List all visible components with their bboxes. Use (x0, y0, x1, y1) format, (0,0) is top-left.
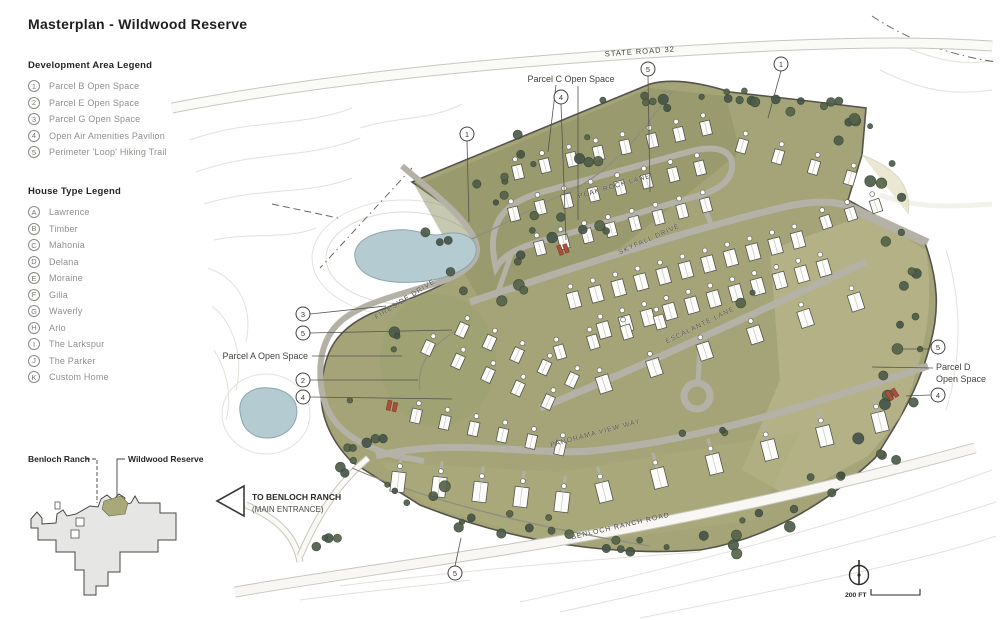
scale-label: 200 FT (845, 592, 867, 599)
masterplan-page: STATE ROAD 32 PEAK ROCK LANE SKYFALL DRI… (0, 0, 1000, 620)
legend-number-badge: 2 (28, 97, 40, 109)
legend-item: 4Open Air Amenities Pavilion (28, 130, 167, 142)
legend-letter-badge: J (28, 355, 40, 367)
house-type-legend: House Type Legend ALawrence BTimber CMah… (28, 186, 121, 388)
marker-4-right: 4 (931, 388, 945, 402)
key-map-inset: Benloch Ranch Wildwood Reserve (28, 454, 204, 595)
legend-letter-badge: I (28, 338, 40, 350)
label-parcel-c: Parcel C Open Space (527, 74, 614, 84)
inset-label-benloch: Benloch Ranch (28, 454, 90, 464)
legend-item: GWaverly (28, 305, 121, 317)
legend-number-badge: 5 (28, 146, 40, 158)
entrance-callout: TO BENLOCH RANCH (MAIN ENTRANCE) (217, 486, 341, 516)
scale-bar (871, 589, 920, 595)
page-title: Masterplan - Wildwood Reserve (28, 16, 247, 32)
label-parcel-d-1: Parcel D (936, 362, 971, 372)
svg-text:5: 5 (936, 343, 940, 352)
marker-1-topleft: 1 (460, 127, 474, 141)
label-parcel-a: Parcel A Open Space (222, 351, 308, 361)
legend-item: 1Parcel B Open Space (28, 80, 167, 92)
marker-5-right: 5 (931, 340, 945, 354)
marker-4-top: 4 (554, 90, 568, 104)
svg-text:5: 5 (301, 329, 305, 338)
legend-letter-badge: C (28, 239, 40, 251)
legend-number-badge: 3 (28, 113, 40, 125)
development-legend-heading: Development Area Legend (28, 60, 167, 71)
legend-letter-badge: H (28, 322, 40, 334)
legend-letter-badge: E (28, 272, 40, 284)
legend-item: DDelana (28, 256, 121, 268)
legend-item: CMahonia (28, 239, 121, 251)
legend-letter-badge: D (28, 256, 40, 268)
marker-1-topright: 1 (774, 57, 788, 71)
marker-4-left: 4 (296, 390, 310, 404)
legend-item: JThe Parker (28, 355, 121, 367)
legend-item: ALawrence (28, 206, 121, 218)
legend-item: KCustom Home (28, 371, 121, 383)
legend-item: 3Parcel G Open Space (28, 113, 167, 125)
svg-text:2: 2 (301, 376, 305, 385)
marker-3-left: 3 (296, 307, 310, 321)
svg-text:5: 5 (646, 65, 650, 74)
marker-5-left: 5 (296, 326, 310, 340)
entrance-line1: TO BENLOCH RANCH (252, 492, 341, 502)
inset-label-wildwood: Wildwood Reserve (128, 454, 204, 464)
svg-text:3: 3 (301, 310, 305, 319)
svg-text:4: 4 (301, 393, 305, 402)
svg-text:1: 1 (779, 60, 783, 69)
north-scale: 200 FT (845, 560, 920, 599)
marker-2-left: 2 (296, 373, 310, 387)
legend-letter-badge: B (28, 223, 40, 235)
legend-item: 5Perimeter 'Loop' Hiking Trail (28, 146, 167, 158)
svg-text:5: 5 (453, 569, 457, 578)
legend-item: IThe Larkspur (28, 338, 121, 350)
legend-item: 2Parcel E Open Space (28, 97, 167, 109)
legend-letter-badge: K (28, 371, 40, 383)
legend-item: HArlo (28, 322, 121, 334)
label-parcel-d-2: Open Space (936, 374, 986, 384)
legend-letter-badge: F (28, 289, 40, 301)
house-legend-heading: House Type Legend (28, 186, 121, 197)
entrance-line2: (MAIN ENTRANCE) (252, 505, 324, 514)
legend-letter-badge: A (28, 206, 40, 218)
legend-number-badge: 4 (28, 130, 40, 142)
legend-number-badge: 1 (28, 80, 40, 92)
svg-text:4: 4 (559, 93, 563, 102)
entrance-arrow-icon (217, 486, 244, 516)
svg-text:1: 1 (465, 130, 469, 139)
legend-item: BTimber (28, 223, 121, 235)
svg-text:4: 4 (936, 391, 940, 400)
marker-5-bottom: 5 (448, 566, 462, 580)
marker-5-top: 5 (641, 62, 655, 76)
legend-item: EMoraine (28, 272, 121, 284)
legend-letter-badge: G (28, 305, 40, 317)
development-area-legend: Development Area Legend 1Parcel B Open S… (28, 60, 167, 163)
legend-item: FGilia (28, 289, 121, 301)
